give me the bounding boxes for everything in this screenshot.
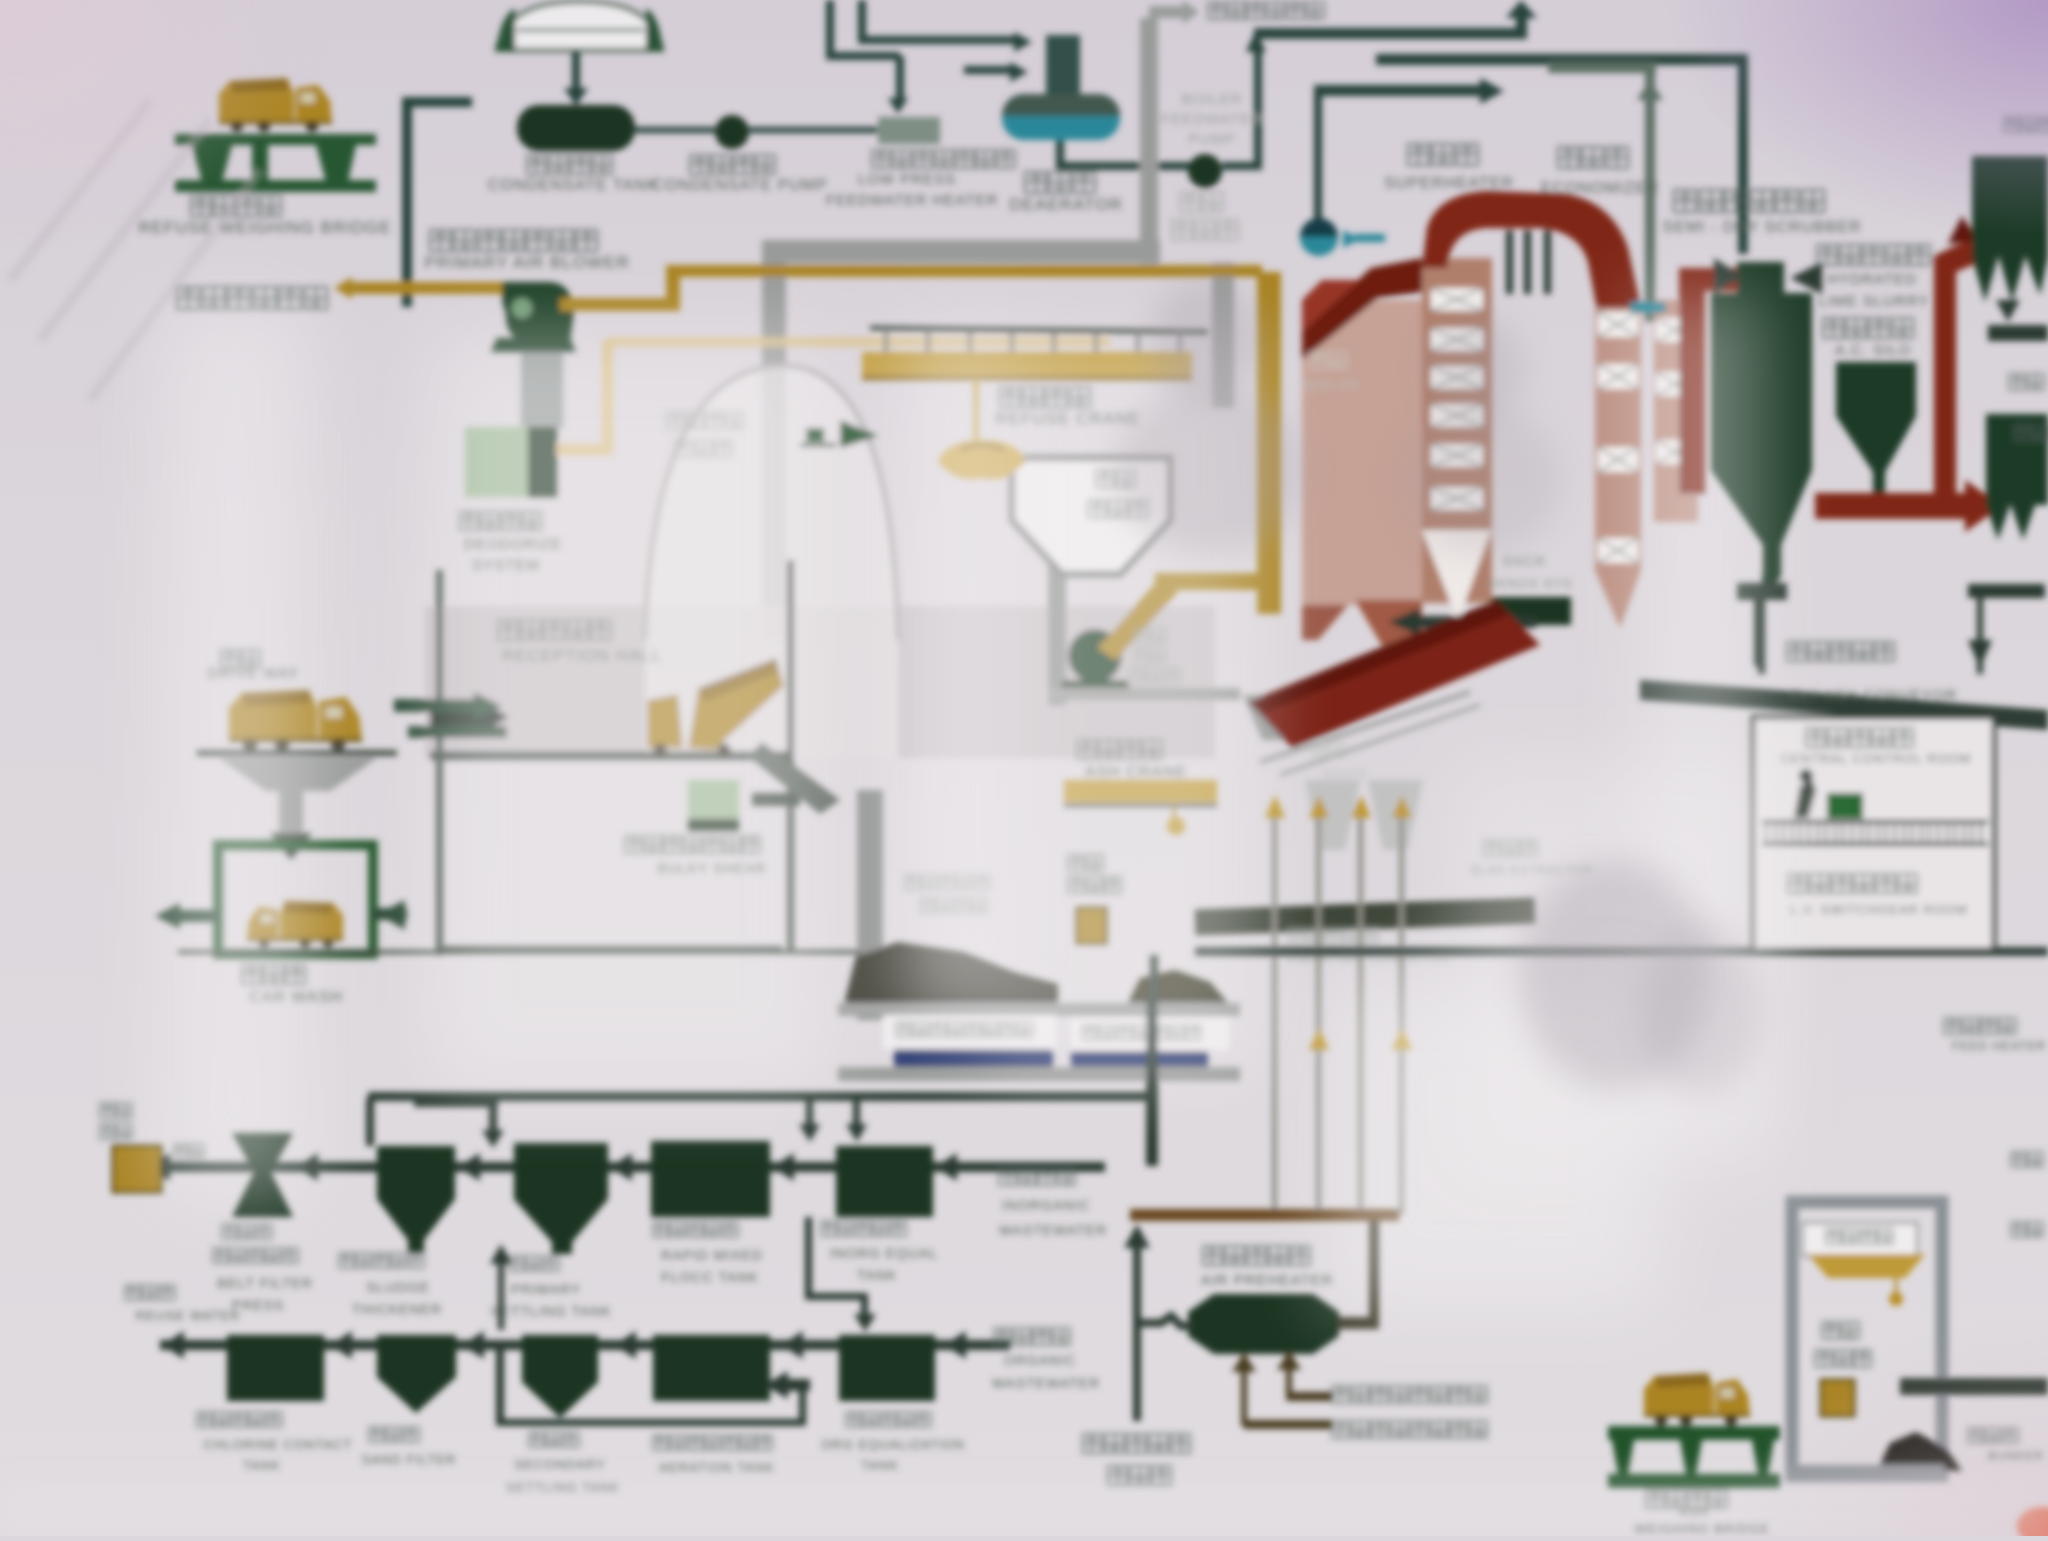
svg-text:LOW PRESS: LOW PRESS <box>858 171 956 188</box>
svg-text:PRIMARY: PRIMARY <box>511 1281 582 1297</box>
svg-text:SLUDGE: SLUDGE <box>366 1279 430 1295</box>
svg-text:BELT FILTER: BELT FILTER <box>217 1275 313 1291</box>
svg-text:TANK: TANK <box>243 1458 281 1473</box>
svg-text:INORG EQUAL: INORG EQUAL <box>830 1245 938 1261</box>
svg-text:SNCR: SNCR <box>1502 553 1546 569</box>
svg-text:TANK: TANK <box>857 1267 897 1283</box>
svg-text:SETTLING TANK: SETTLING TANK <box>490 1303 611 1319</box>
svg-text:DEAERATOR: DEAERATOR <box>1009 195 1122 214</box>
svg-text:L.V. SWITCHGEAR ROOM: L.V. SWITCHGEAR ROOM <box>1790 902 1968 917</box>
svg-text:THICKENER: THICKENER <box>352 1301 442 1317</box>
svg-text:FEEDWATER HEATER: FEEDWATER HEATER <box>826 192 998 209</box>
svg-text:CONDENSATE PUMP: CONDENSATE PUMP <box>652 177 828 194</box>
svg-text:PUMP: PUMP <box>1188 131 1235 148</box>
svg-text:CHLORINE CONTACT: CHLORINE CONTACT <box>204 1437 353 1452</box>
svg-text:ORGANIC: ORGANIC <box>1004 1352 1076 1368</box>
svg-text:BOILER: BOILER <box>1181 91 1242 108</box>
svg-text:AERATION TANK: AERATION TANK <box>659 1460 775 1475</box>
svg-text:FEEDWATER: FEEDWATER <box>1161 111 1263 128</box>
svg-text:SECONDARY: SECONDARY <box>514 1457 605 1472</box>
svg-text:REUSE WATER: REUSE WATER <box>136 1308 241 1323</box>
svg-text:RAPID MIXED: RAPID MIXED <box>661 1247 763 1263</box>
svg-text:FEED HEATER: FEED HEATER <box>1952 1039 2046 1053</box>
svg-text:CENTRAL CONTROL ROOM: CENTRAL CONTROL ROOM <box>1781 751 1972 766</box>
svg-text:FLY ASH CONVEYOR: FLY ASH CONVEYOR <box>1791 687 1957 704</box>
svg-text:SAND FILTER: SAND FILTER <box>362 1452 457 1467</box>
svg-text:TANK: TANK <box>861 1458 899 1473</box>
svg-text:WASTEWATER: WASTEWATER <box>992 1375 1100 1391</box>
svg-text:WASTEWATER: WASTEWATER <box>999 1222 1107 1238</box>
svg-text:FLOCC TANK: FLOCC TANK <box>661 1269 758 1285</box>
svg-text:AIR PREHEATER: AIR PREHEATER <box>1201 1272 1334 1289</box>
svg-text:INORGANIC: INORGANIC <box>1002 1197 1090 1213</box>
svg-text:DENOX SYS: DENOX SYS <box>1488 576 1573 591</box>
svg-text:ORG EQUALIZATION: ORG EQUALIZATION <box>821 1437 965 1452</box>
svg-text:GRATE: GRATE <box>1322 767 1367 781</box>
